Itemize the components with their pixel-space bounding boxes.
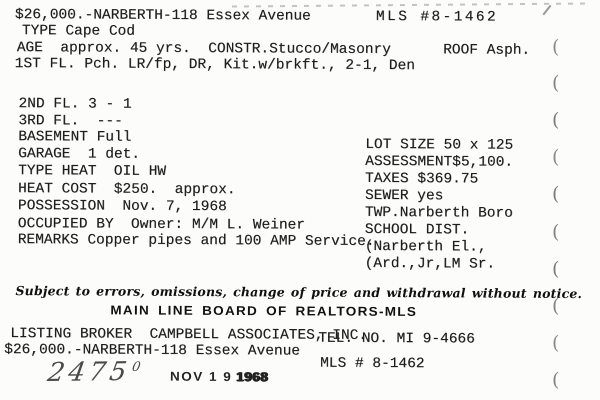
detail-line-lot-size: LOT SIZE 50 x 125 (365, 138, 513, 155)
mls-number: MLS #8-1462 (376, 10, 498, 27)
typed-card-content: $26,000.-NARBERTH-118 Essex Avenue MLS #… (0, 0, 600, 400)
binding-mark-icon: ( (552, 334, 559, 353)
detail-line-assessment: ASSESSMENT$5,100. (365, 155, 513, 172)
binding-mark-icon: ( (552, 223, 559, 242)
handwritten-number: 24750 (45, 357, 141, 388)
disclaimer-text: Subject to errors, omissions, change of … (15, 283, 582, 301)
detail-line-type-heat: TYPE HEAT OIL HW (18, 164, 166, 181)
detail-line-school-jr-sr: (Ard.,Jr,LM Sr. (365, 257, 496, 274)
binding-mark-icon: ( (552, 371, 559, 390)
binding-mark-icon: ( (552, 297, 559, 316)
detail-line-possession: POSSESSION Nov. 7, 1968 (18, 199, 227, 216)
binding-mark-icon: ( (552, 185, 559, 204)
date-stamp-day: NOV 1 9 (170, 369, 232, 384)
handwritten-superscript-digit: 0 (131, 360, 142, 375)
binding-mark-icon: ( (552, 38, 559, 57)
date-stamp-year: 1968 (236, 370, 268, 384)
detail-line-school-el: (Narberth El., (365, 240, 487, 257)
detail-line-remarks: REMARKS Copper pipes and 100 AMP Service… (18, 233, 375, 251)
detail-line-basement: BASEMENT Full (18, 130, 131, 147)
type-line: TYPE Cape Cod (22, 24, 135, 41)
telephone-number: TEL. NO. MI 9-4666 (318, 332, 475, 349)
binding-mark-icon: ( (552, 111, 559, 130)
detail-line-school-dist: SCHOOL DIST. (365, 223, 470, 239)
detail-line-sewer: SEWER yes (365, 189, 443, 205)
date-stamp: NOV 1 91968 (170, 369, 268, 384)
handwritten-digits: 2475 (45, 357, 132, 388)
mls-number-repeat: MLS # 8-1462 (320, 357, 425, 373)
board-of-realtors-title: MAIN LINE BOARD OF REALTORS-MLS (110, 303, 417, 319)
binding-mark-icon: ( (552, 74, 559, 93)
binding-mark-icon: ( (552, 148, 559, 167)
detail-line-taxes: TAXES $369.75 (365, 172, 478, 189)
mls-listing-card: $26,000.-NARBERTH-118 Essex Avenue MLS #… (0, 0, 600, 400)
detail-line-township: TWP.Narberth Boro (365, 206, 513, 223)
first-floor-line: 1ST FL. Pch. LR/fp, DR, Kit.w/brkft., 2-… (15, 57, 415, 75)
binding-mark-icon: ( (552, 260, 559, 279)
detail-line-garage: GARAGE 1 det. (18, 147, 140, 164)
price-address-repeat: $26,000.-NARBERTH-118 Essex Avenue (4, 343, 300, 360)
detail-line-3rd-fl: 3RD FL. --- (18, 114, 123, 130)
detail-line-heat-cost: HEAT COST $250. approx. (18, 182, 236, 199)
detail-line-2nd-fl: 2ND FL. 3 - 1 (18, 97, 131, 114)
